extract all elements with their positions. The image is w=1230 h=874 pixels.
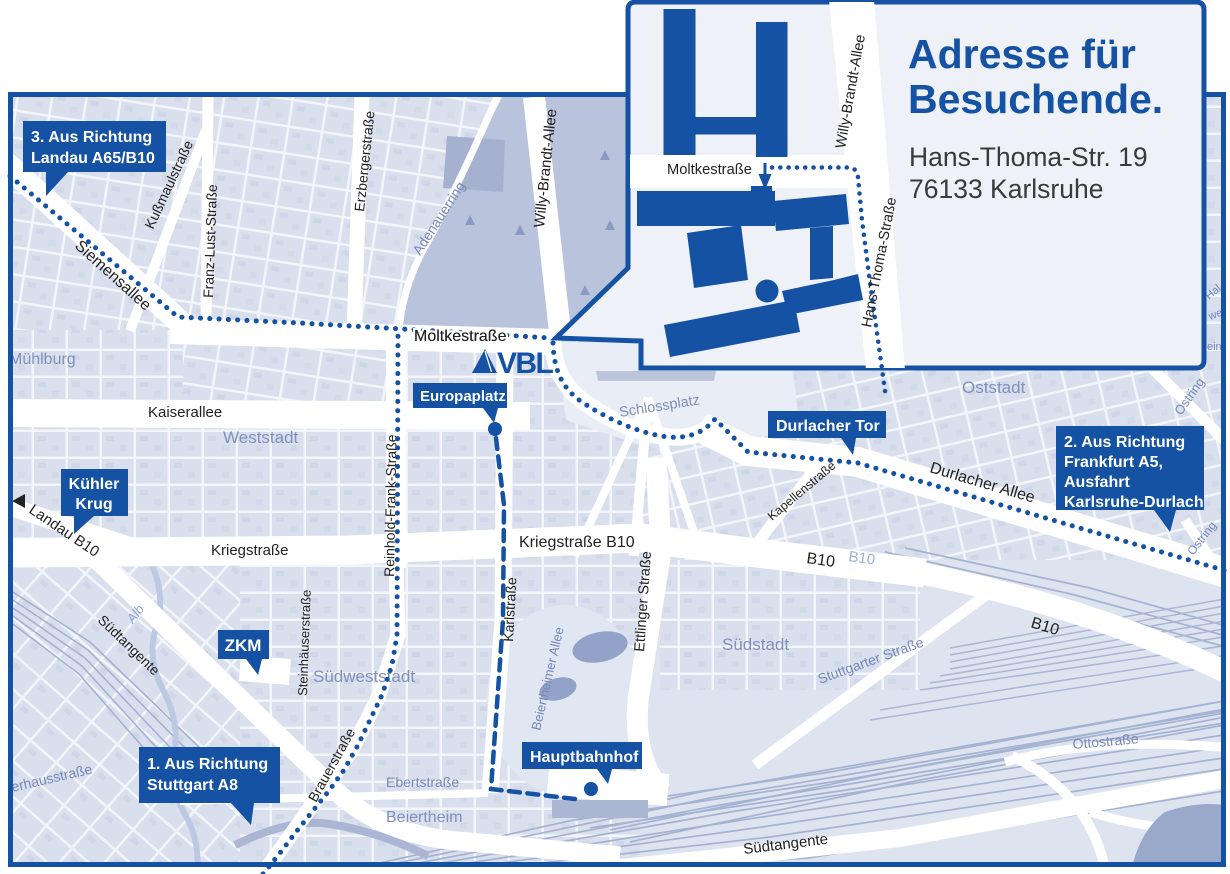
- svg-text:Kriegstraße B10: Kriegstraße B10: [519, 534, 635, 551]
- svg-text:Hans-Thoma-Str. 19: Hans-Thoma-Str. 19: [909, 142, 1148, 172]
- svg-text:Ausfahrt: Ausfahrt: [1064, 474, 1130, 491]
- svg-text:Kaiserallee: Kaiserallee: [148, 404, 222, 421]
- svg-text:Moltkestraße: Moltkestraße: [414, 328, 507, 345]
- svg-text:Hauptbahnhof: Hauptbahnhof: [530, 749, 639, 766]
- svg-text:Stuttgart A8: Stuttgart A8: [147, 777, 238, 794]
- svg-text:Landau A65/B10: Landau A65/B10: [31, 150, 155, 167]
- svg-text:2. Aus Richtung: 2. Aus Richtung: [1064, 434, 1185, 451]
- svg-text:Besuchende.: Besuchende.: [908, 76, 1163, 122]
- svg-text:Ebertstraße: Ebertstraße: [386, 774, 459, 790]
- svg-text:Südweststadt: Südweststadt: [313, 667, 415, 686]
- svg-text:Frankfurt A5,: Frankfurt A5,: [1064, 454, 1163, 471]
- svg-text:Beiertheim: Beiertheim: [386, 809, 462, 826]
- svg-text:76133 Karlsruhe: 76133 Karlsruhe: [909, 174, 1103, 204]
- svg-text:Karlsruhe-Durlach: Karlsruhe-Durlach: [1064, 494, 1204, 511]
- svg-text:Moltkestraße: Moltkestraße: [667, 162, 752, 178]
- svg-text:Mühlburg: Mühlburg: [9, 351, 76, 368]
- svg-text:VBL: VBL: [497, 347, 553, 380]
- svg-text:Europaplatz: Europaplatz: [420, 388, 506, 405]
- svg-text:ZKM: ZKM: [225, 636, 262, 655]
- svg-text:1. Aus Richtung: 1. Aus Richtung: [147, 756, 268, 773]
- svg-text:Durlacher Tor: Durlacher Tor: [776, 418, 880, 435]
- svg-text:Kühler: Kühler: [69, 476, 120, 493]
- svg-text:Weststadt: Weststadt: [223, 428, 299, 447]
- svg-text:Adresse für: Adresse für: [908, 31, 1136, 77]
- svg-text:3. Aus Richtung: 3. Aus Richtung: [31, 129, 152, 146]
- svg-text:Krug: Krug: [75, 496, 112, 513]
- svg-text:Oststadt: Oststadt: [962, 378, 1026, 397]
- svg-text:ein: ein: [1207, 341, 1222, 353]
- svg-text:Südstadt: Südstadt: [722, 635, 789, 654]
- svg-text:Kriegstraße: Kriegstraße: [211, 542, 289, 559]
